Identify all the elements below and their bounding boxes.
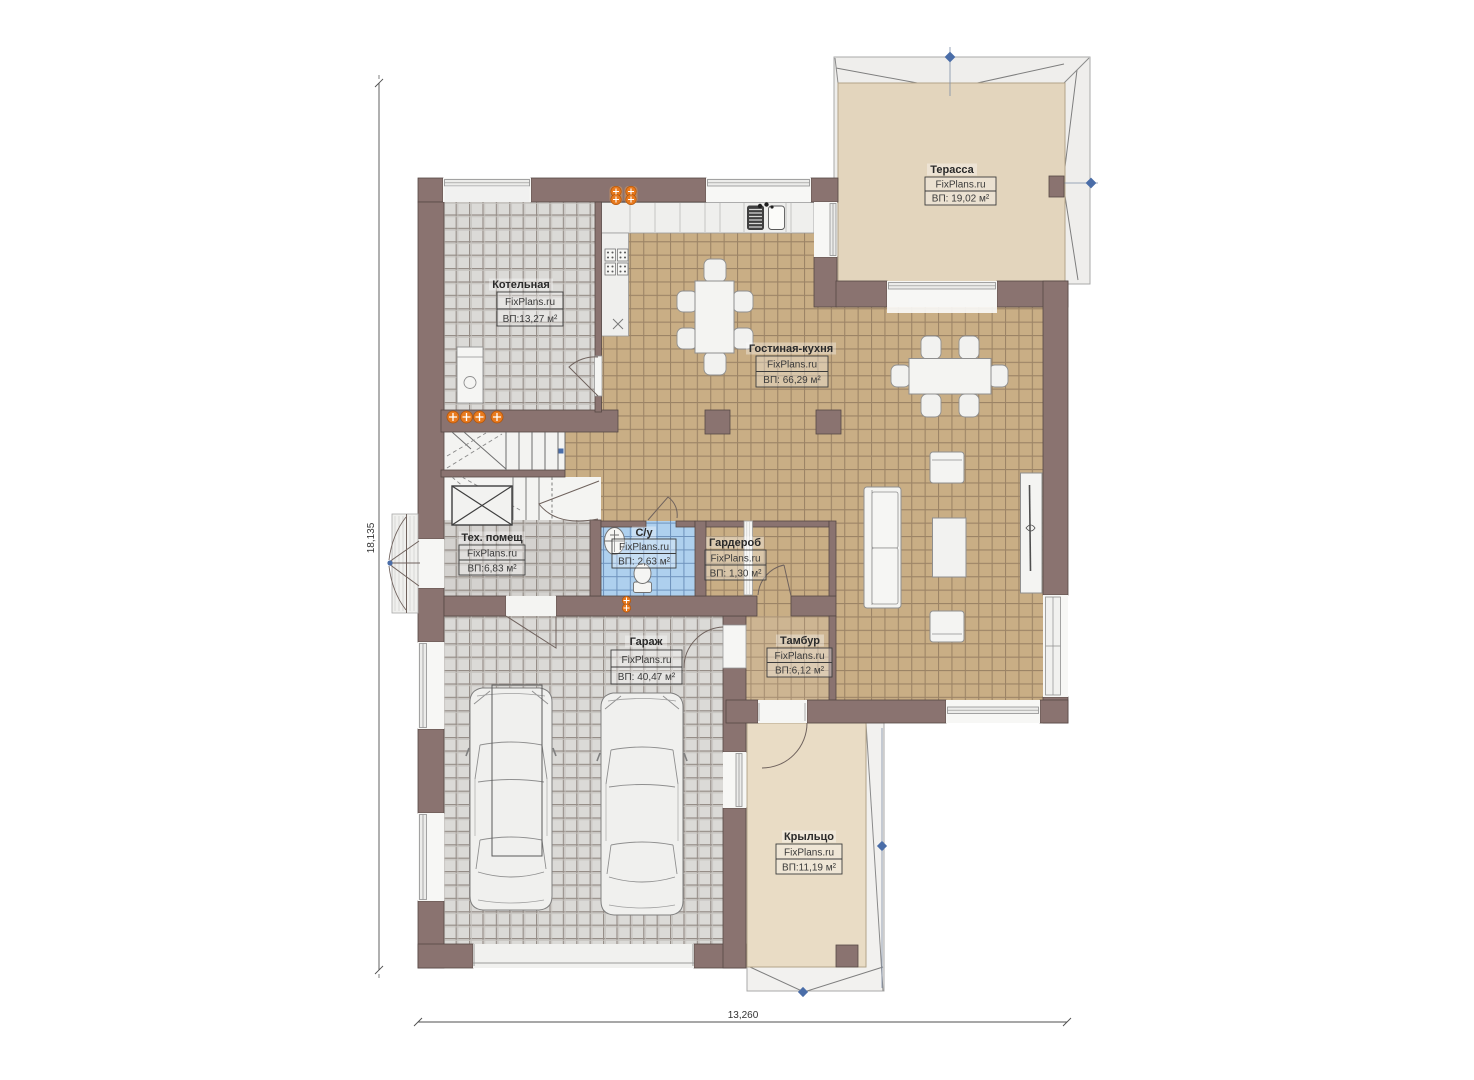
svg-text:FixPlans.ru: FixPlans.ru [467,549,517,560]
svg-text:18,135: 18,135 [366,522,377,553]
svg-text:ВП:13,27 м²: ВП:13,27 м² [503,314,558,325]
svg-text:FixPlans.ru: FixPlans.ru [767,360,817,371]
svg-text:Тамбур: Тамбур [780,635,820,647]
svg-text:ВП:11,19 м²: ВП:11,19 м² [782,863,837,874]
svg-text:Гардероб: Гардероб [709,537,761,549]
svg-text:Котельная: Котельная [492,279,550,291]
svg-text:ВП: 19,02 м²: ВП: 19,02 м² [932,194,990,205]
svg-text:Тех. помещ: Тех. помещ [461,532,523,544]
svg-text:ВП:6,12 м²: ВП:6,12 м² [775,666,825,677]
svg-text:ВП: 40,47 м²: ВП: 40,47 м² [618,672,676,683]
svg-text:Терасса: Терасса [930,164,974,176]
svg-text:FixPlans.ru: FixPlans.ru [505,297,555,308]
svg-text:FixPlans.ru: FixPlans.ru [710,554,760,565]
svg-text:FixPlans.ru: FixPlans.ru [774,651,824,662]
svg-text:FixPlans.ru: FixPlans.ru [619,542,669,553]
svg-text:FixPlans.ru: FixPlans.ru [935,180,985,191]
svg-text:ВП: 1,30 м²: ВП: 1,30 м² [710,569,763,580]
svg-text:ВП: 66,29 м²: ВП: 66,29 м² [763,375,821,386]
svg-text:Гараж: Гараж [630,636,663,648]
svg-text:FixPlans.ru: FixPlans.ru [784,848,834,859]
svg-text:FixPlans.ru: FixPlans.ru [621,655,671,666]
svg-text:Гостиная-кухня: Гостиная-кухня [749,343,833,355]
svg-text:С/у: С/у [635,527,653,539]
svg-text:Крыльцо: Крыльцо [784,831,834,843]
svg-text:ВП: 2,63 м²: ВП: 2,63 м² [618,557,671,568]
svg-text:13,260: 13,260 [728,1010,759,1021]
svg-text:ВП:6,83 м²: ВП:6,83 м² [467,564,517,575]
